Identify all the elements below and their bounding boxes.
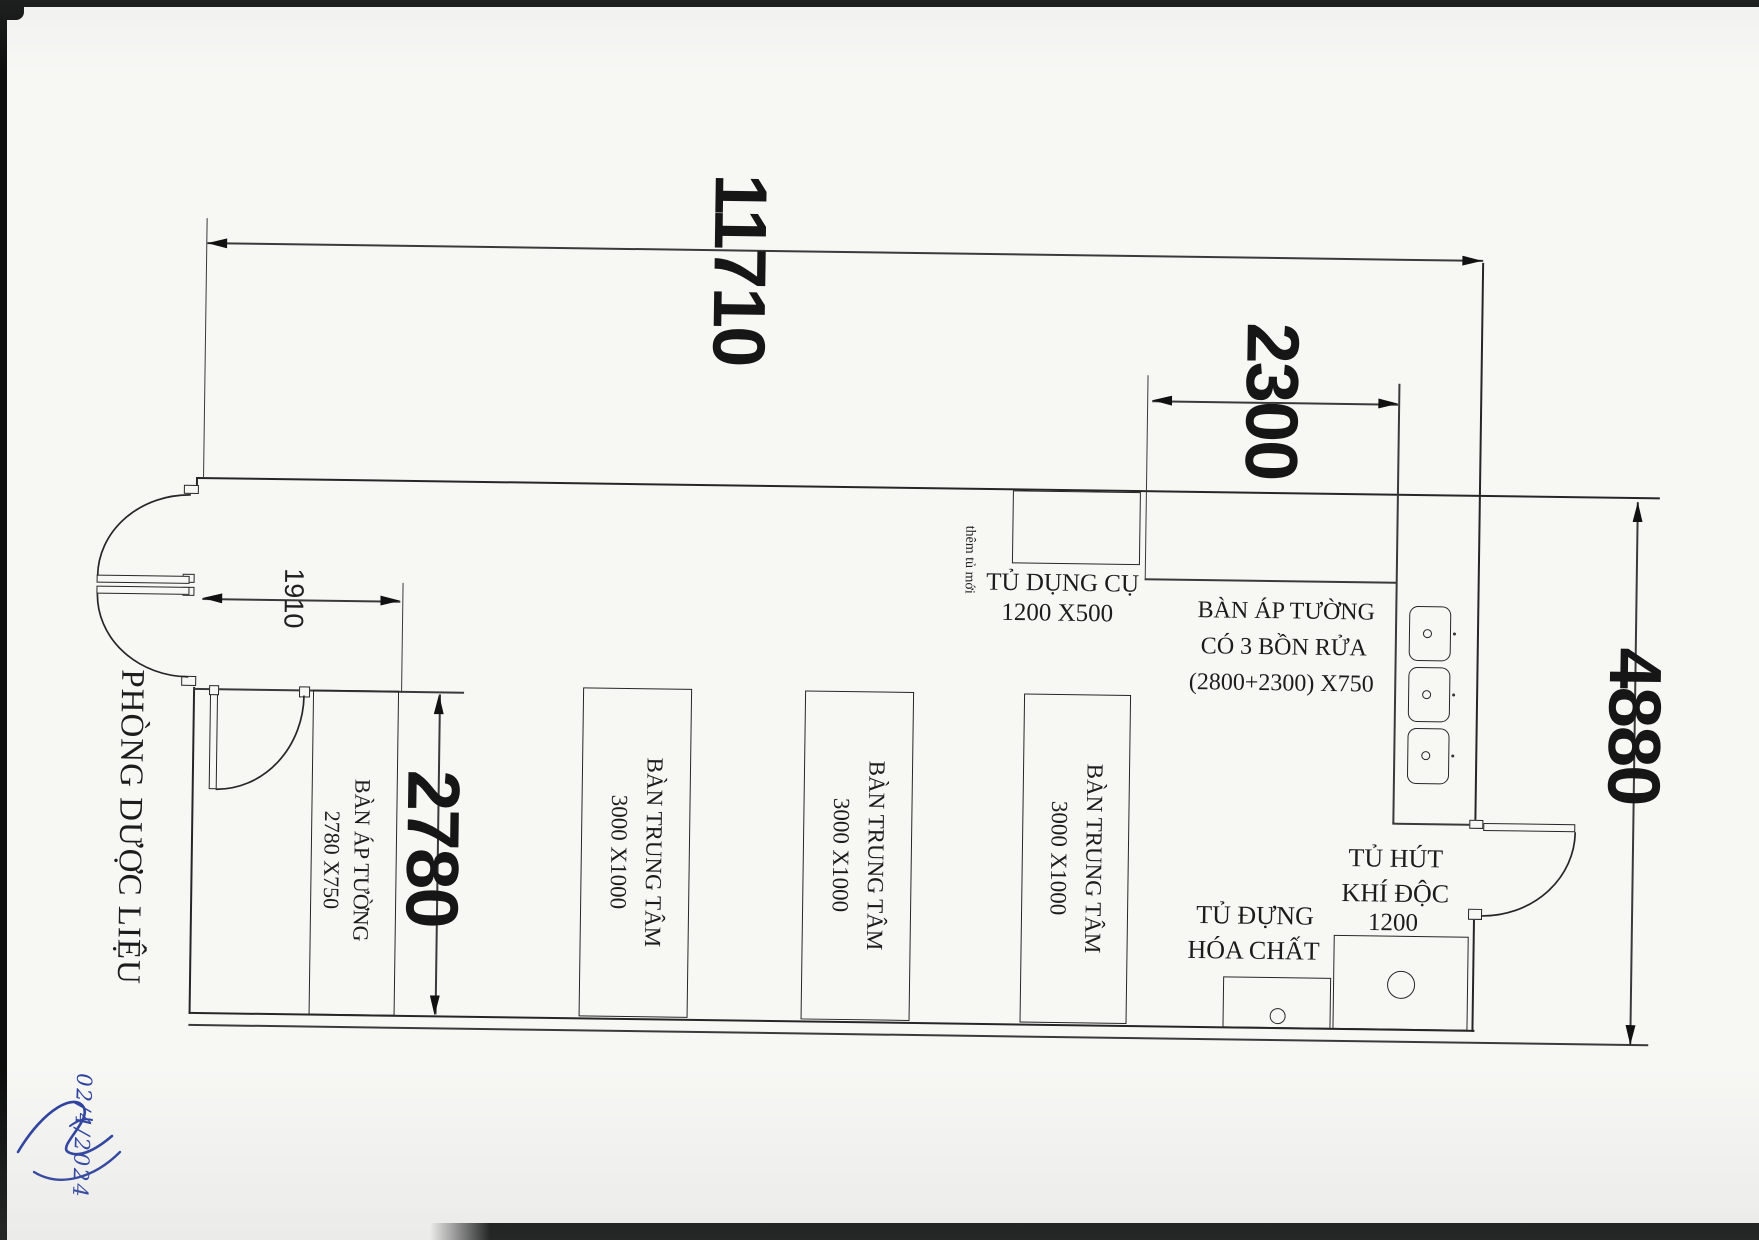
chemical-cabinet-label-2: HÓA CHẤT (1187, 935, 1320, 967)
door-hinge-block (1469, 820, 1483, 829)
center-table-name: BÀN TRUNG TÂM (1074, 763, 1111, 953)
door-swing-arcs (0, 0, 1759, 1240)
arrow-11710-left (207, 238, 227, 248)
arrow-1910-left (202, 593, 222, 603)
sink-2-drain (1422, 690, 1431, 699)
arrow-4880-down (1625, 1025, 1635, 1045)
center-table-1-label: BÀN TRUNG TÂM 3000 X1000 (600, 757, 672, 948)
inner-door-leaf (209, 694, 218, 789)
tool-cabinet-size: 1200 X500 (1001, 599, 1113, 629)
dim-4880: 4880 (1591, 647, 1678, 805)
ext-line-2300-left (1145, 375, 1149, 580)
scan-edge-left (0, 0, 7, 1240)
fume-hood-label-1: TỦ HÚT (1348, 843, 1443, 874)
door-jamb (1468, 909, 1482, 920)
center-table-2-label: BÀN TRUNG TÂM 3000 X1000 (822, 760, 894, 951)
dim-2300: 2300 (1229, 322, 1316, 480)
center-table-size: 3000 X1000 (600, 757, 637, 947)
fume-hood-label-2: KHÍ ĐỘC (1341, 878, 1449, 909)
wall-bench-size: 2780 X750 (316, 778, 348, 941)
center-table-name: BÀN TRUNG TÂM (857, 760, 894, 950)
sink-3-tap-dot (1451, 754, 1454, 757)
ext-line-11710-left (203, 218, 208, 478)
double-door-leaf-bottom (96, 586, 189, 595)
door-jamb (181, 676, 196, 686)
arrow-2300-right (1378, 398, 1398, 408)
counter-vert-bottom-edge (1392, 823, 1476, 826)
right-door-leaf (1483, 823, 1575, 832)
wall-left-lower (189, 687, 196, 1014)
sink-3-drain (1421, 751, 1430, 760)
dim-2780: 2780 (389, 769, 476, 927)
center-table-name: BÀN TRUNG TÂM (635, 757, 672, 947)
door-jamb (184, 485, 199, 494)
ext-line-1910-right (401, 583, 404, 693)
handwritten-date: 02/4/2024 (68, 1073, 97, 1199)
center-table-size: 3000 X1000 (822, 760, 859, 950)
floor-plan: 11710 2300 4880 2780 1910 PHÒNG DƯỢC LIỆ… (0, 0, 1759, 1240)
arrow-2780-down (430, 995, 440, 1015)
sink-bench-label-1: BÀN ÁP TƯỜNG (1197, 597, 1375, 627)
arrow-2300-left (1152, 395, 1172, 405)
sink-bench-label-3: (2800+2300) X750 (1189, 669, 1374, 699)
arrow-1910-right (380, 596, 400, 606)
scanned-floor-plan-page: 11710 2300 4880 2780 1910 PHÒNG DƯỢC LIỆ… (0, 0, 1759, 1240)
wall-top (197, 477, 1660, 499)
room-label: PHÒNG DƯỢC LIỆU (108, 669, 150, 985)
chemical-cabinet-label-1: TỦ ĐỰNG (1196, 900, 1314, 932)
double-door-leaf-top (97, 575, 190, 584)
sink-2-tap-dot (1452, 694, 1455, 697)
tool-cabinet-name: TỦ DỤNG CỤ (986, 569, 1139, 600)
sink-bench-label-2: CÓ 3 BỒN RỬA (1201, 633, 1367, 663)
scan-edge-bottom (430, 1223, 1759, 1240)
center-table-size: 3000 X1000 (1040, 763, 1077, 953)
arrow-11710-right (1462, 256, 1482, 266)
fume-hood-label-3: 1200 (1368, 909, 1418, 938)
dim-line-11710 (207, 242, 1483, 261)
arrow-2780-up (434, 694, 444, 714)
scan-edge-top (0, 0, 1759, 7)
door-jamb (299, 686, 310, 697)
wall-right-lower (1471, 915, 1475, 1032)
wall-bench-label: BÀN ÁP TƯỜNG 2780 X750 (316, 778, 378, 941)
arrow-4880-up (1633, 502, 1643, 522)
dim-1910: 1910 (277, 568, 309, 629)
wall-bench-name: BÀN ÁP TƯỜNG (346, 779, 378, 942)
counter-top-bottom-edge (1145, 578, 1397, 583)
center-table-3-label: BÀN TRUNG TÂM 3000 X1000 (1040, 763, 1112, 954)
tool-cabinet-outline (1012, 490, 1141, 565)
dim-11710: 11710 (696, 173, 784, 366)
counter-left-edge (1392, 384, 1400, 824)
wall-right-upper (1474, 263, 1484, 826)
sink-1-drain (1423, 629, 1432, 638)
new-cabinet-note: thêm tủ mới (960, 526, 977, 594)
sink-1-tap-dot (1453, 633, 1456, 636)
